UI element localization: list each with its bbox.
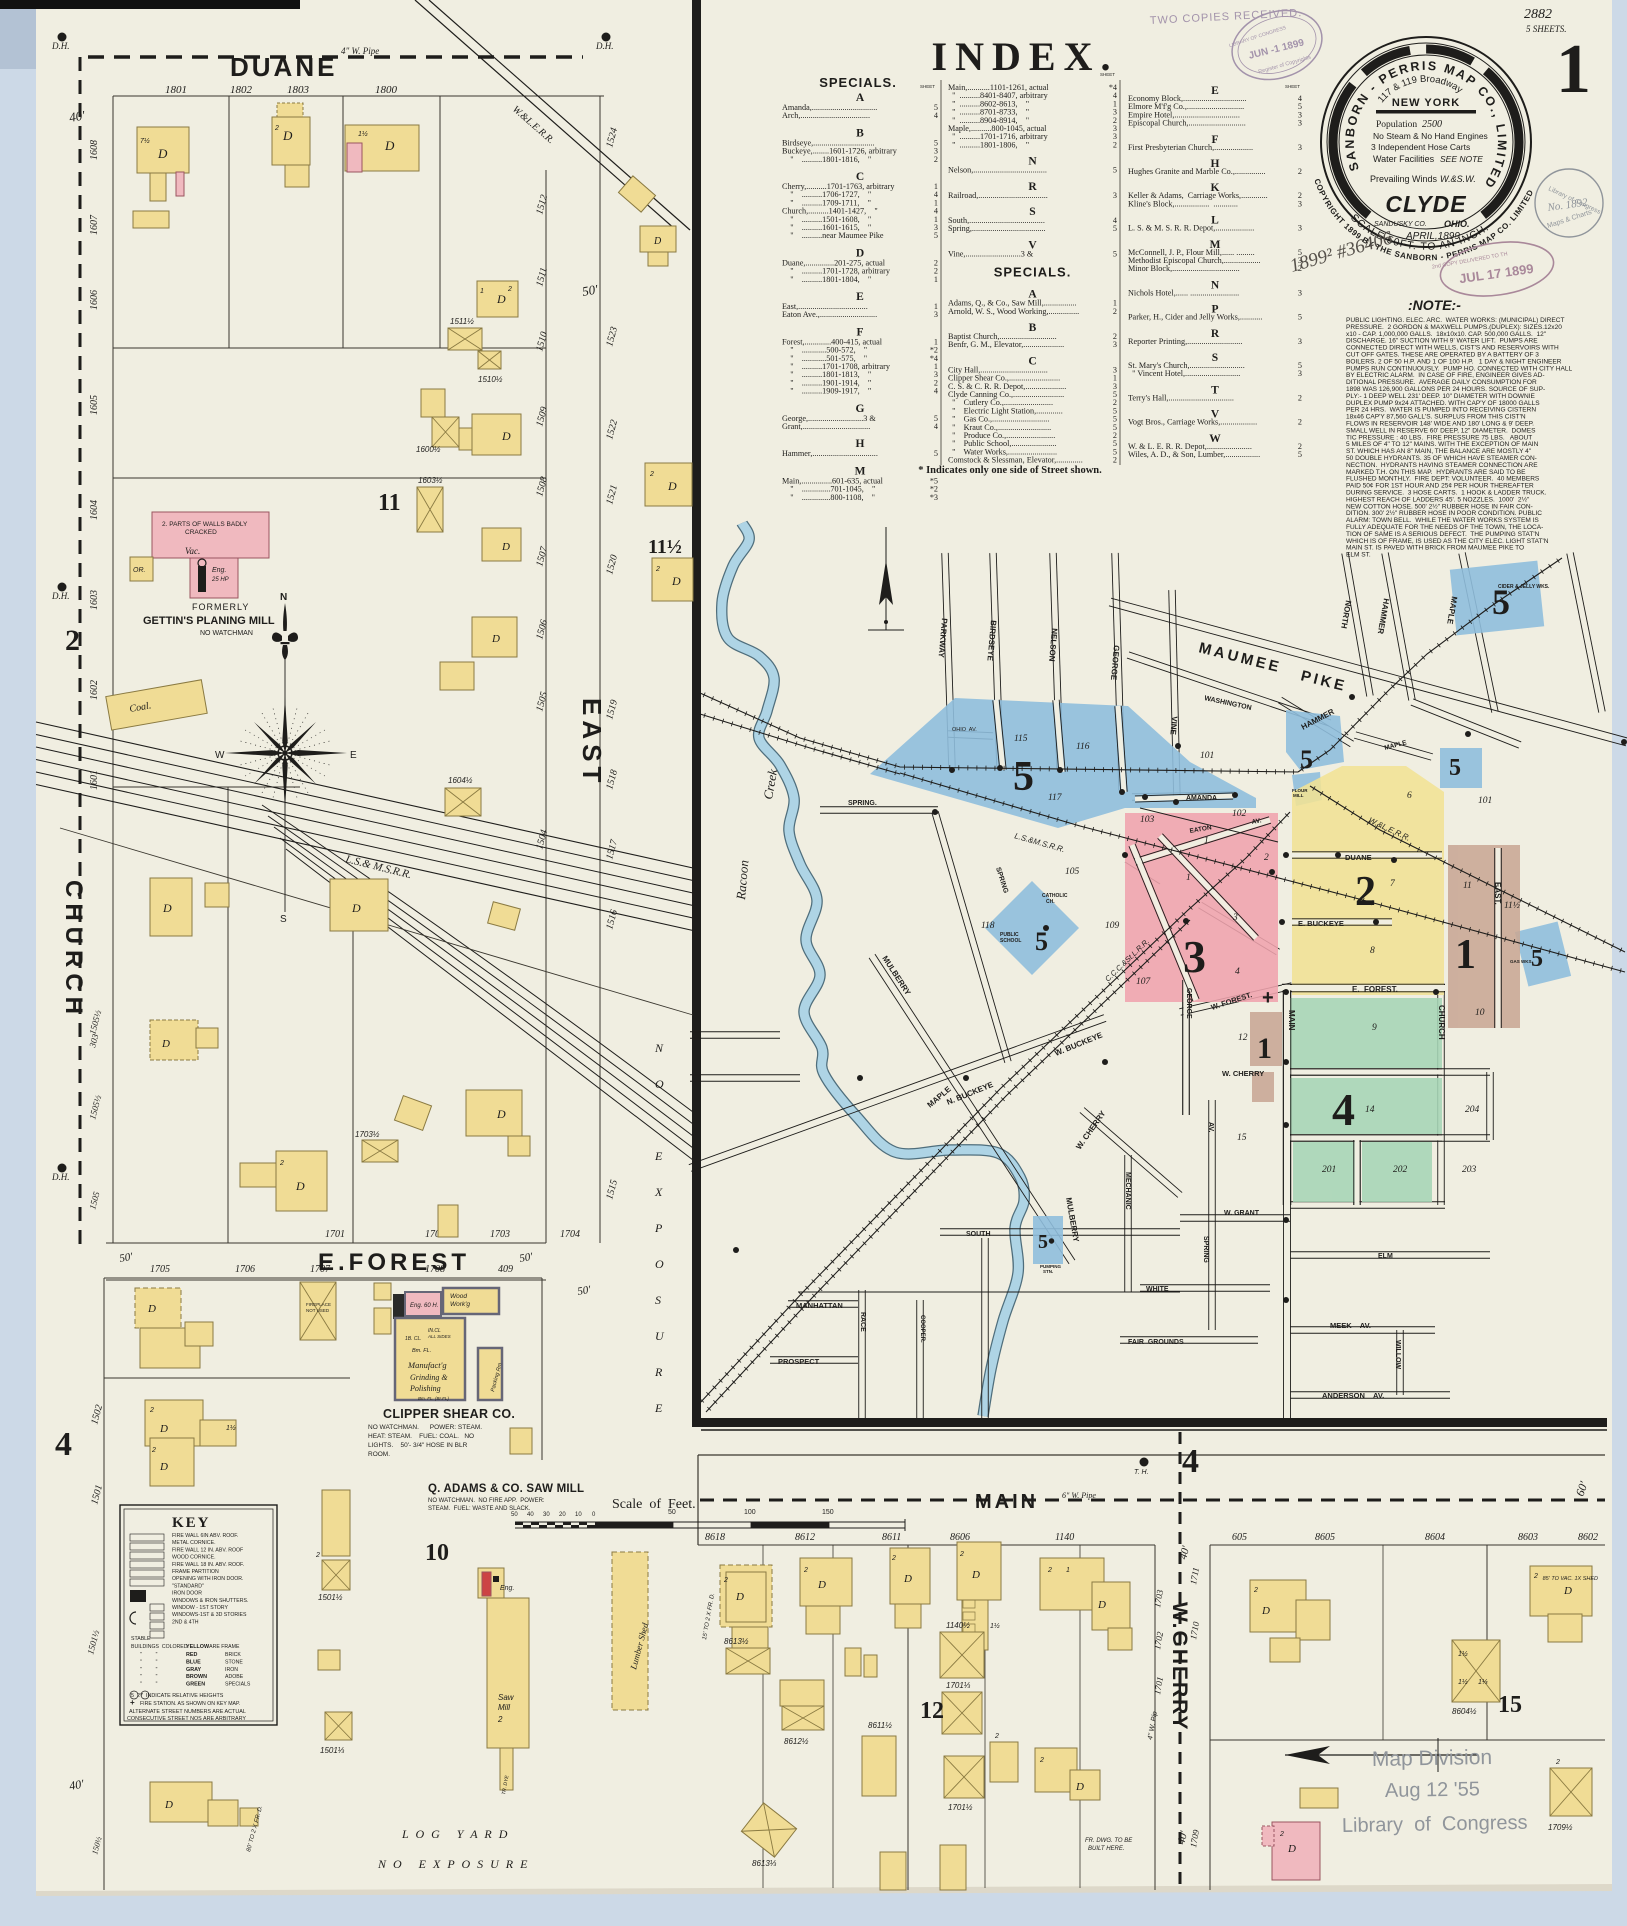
svg-text::NOTE:-: :NOTE:- [1408, 297, 1461, 313]
svg-text:8611: 8611 [882, 1532, 901, 1543]
svg-text:" ..........1801-1806, ": " ..........1801-1806, " [948, 140, 1029, 149]
svg-text:MAIN: MAIN [975, 1491, 1038, 1513]
svg-text:1803: 1803 [287, 84, 310, 96]
svg-text:11: 11 [378, 490, 401, 516]
svg-text:D: D [501, 541, 510, 553]
svg-text:1607: 1607 [89, 214, 100, 235]
svg-text:2: 2 [1298, 393, 1302, 402]
svg-text:101: 101 [1478, 796, 1492, 806]
svg-text:2: 2 [1298, 418, 1302, 427]
svg-text:1501½: 1501½ [318, 1593, 343, 1602]
svg-text:1602: 1602 [89, 680, 100, 700]
svg-text:118: 118 [981, 921, 995, 931]
svg-text:SEE NOTE: SEE NOTE [1440, 154, 1483, 164]
svg-text:Population: Population [1376, 120, 1420, 130]
svg-text:COOPER.: COOPER. [919, 1315, 925, 1343]
svg-text:Arnold, W. S., Wood Working,..: Arnold, W. S., Wood Working,............… [948, 307, 1079, 316]
svg-text:Hughes Granite and Marble Co.,: Hughes Granite and Marble Co.,..........… [1128, 167, 1266, 176]
svg-text:2: 2 [934, 155, 938, 164]
svg-text:NEW YORK: NEW YORK [1392, 97, 1460, 109]
svg-text:8602: 8602 [1578, 1532, 1598, 1543]
svg-text:Spring,.......................: Spring,.................................… [948, 224, 1046, 233]
svg-text:D.H.: D.H. [51, 591, 70, 601]
svg-text:D: D [1097, 1599, 1106, 1611]
svg-text:First Presbyterian Church,....: First Presbyterian Church,..............… [1128, 143, 1253, 152]
svg-text:EAST.: EAST. [1493, 882, 1502, 905]
svg-text:BROWN: BROWN [186, 1674, 207, 1680]
svg-text:3: 3 [1298, 143, 1302, 152]
svg-text:202: 202 [1393, 1165, 1408, 1175]
svg-text:SCHOOL: SCHOOL [1000, 938, 1021, 944]
svg-text:2: 2 [655, 566, 660, 573]
svg-text:STONE: STONE [225, 1659, 243, 1665]
svg-text:W.GHERRY: W.GHERRY [1168, 1602, 1191, 1732]
svg-text:204: 204 [1465, 1105, 1480, 1115]
svg-text:SPECIALS.: SPECIALS. [994, 265, 1072, 280]
svg-text:150: 150 [822, 1509, 834, 1516]
svg-text:Kline's Block,................: Kline's Block,................. ........… [1128, 199, 1238, 208]
svg-text:4: 4 [1235, 967, 1240, 977]
svg-text:3: 3 [1113, 340, 1117, 349]
svg-text:HEAT: STEAM. FUEL: COAL.: HEAT: STEAM. FUEL: COAL. NO [368, 1433, 474, 1440]
svg-text:ROOM.: ROOM. [368, 1451, 390, 1458]
svg-text:3: 3 [1183, 931, 1206, 982]
svg-text:SHEET: SHEET [1100, 72, 1115, 77]
svg-text:Minor Block,..................: Minor Block,............................… [1128, 264, 1240, 273]
svg-text:2: 2 [723, 1577, 728, 1584]
svg-text:+: + [1262, 987, 1274, 1009]
svg-text:6: 6 [1407, 791, 1412, 801]
svg-text:1: 1 [1556, 31, 1591, 108]
svg-text:40': 40' [68, 107, 86, 125]
svg-text:5: 5 [934, 231, 938, 240]
svg-text:Arch,.........................: Arch,.................................. [782, 111, 870, 120]
svg-text:NEW COTTON HOSE. 500' 2½" RUBB: NEW COTTON HOSE. 500' 2½" RUBBER HOSE IN… [1346, 502, 1533, 510]
svg-text:8613½: 8613½ [724, 1637, 749, 1646]
svg-text:5 27 INDICATE RELATIVE HEIGH: 5 27 INDICATE RELATIVE HEIGHTS [131, 1693, 224, 1699]
svg-text:1510½: 1510½ [478, 375, 503, 384]
svg-text:2: 2 [279, 1160, 284, 1167]
svg-text:MECHANIC: MECHANIC [1124, 1172, 1131, 1210]
svg-text:U: U [655, 1329, 665, 1343]
svg-text:" ..............800-1108,: " ..............800-1108, " [782, 493, 875, 502]
svg-text:D: D [1261, 1605, 1270, 1617]
svg-text:GREEN: GREEN [186, 1682, 205, 1688]
svg-text:D: D [667, 479, 677, 493]
svg-text:3: 3 [1298, 288, 1302, 297]
svg-text:LIGHTS. 50'- 3/4" HOSE IN B: LIGHTS. 50'- 3/4" HOSE IN BLR [368, 1442, 468, 1449]
svg-text:WINDOW - 1ST STORY: WINDOW - 1ST STORY [172, 1605, 228, 1611]
svg-text:O: O [655, 1077, 664, 1091]
svg-text:X: X [654, 1185, 663, 1199]
svg-text:CHURCH: CHURCH [60, 880, 87, 1020]
svg-text:FIRE WALL 18 IN. ABV. ROOF.: FIRE WALL 18 IN. ABV. ROOF. [172, 1562, 244, 1568]
svg-text:2: 2 [274, 125, 279, 132]
svg-text:7½: 7½ [140, 137, 150, 145]
svg-text:ELM: ELM [1378, 1253, 1393, 1260]
svg-text:1½: 1½ [226, 1424, 236, 1432]
svg-text:1705: 1705 [150, 1264, 170, 1275]
svg-text:2: 2 [1113, 307, 1117, 316]
svg-text:Wiles, A. D., & Son, Lumber,..: Wiles, A. D., & Son, Lumber,............… [1128, 450, 1260, 459]
svg-text:5: 5 [1298, 313, 1302, 322]
svg-text:2: 2 [507, 286, 512, 293]
svg-text:D: D [496, 1107, 506, 1121]
svg-text:W. CHERRY: W. CHERRY [1222, 1069, 1264, 1078]
svg-text:Prevailing Winds: Prevailing Winds [1370, 174, 1438, 184]
svg-text:5: 5 [1449, 755, 1461, 781]
svg-text:D: D [903, 1573, 912, 1585]
svg-text:2: 2 [1253, 1587, 1258, 1594]
svg-text:D: D [147, 1303, 156, 1315]
svg-text:1: 1 [480, 288, 484, 295]
svg-text:GEORGE: GEORGE [1185, 988, 1192, 1019]
svg-text:3: 3 [1298, 369, 1302, 378]
svg-text:8612: 8612 [795, 1532, 815, 1543]
svg-text:116: 116 [1076, 742, 1090, 752]
svg-text:1701: 1701 [325, 1229, 345, 1240]
svg-text:WINDOWS-1ST & 3D STORIES: WINDOWS-1ST & 3D STORIES [172, 1612, 247, 1618]
svg-text:10: 10 [575, 1512, 582, 1518]
svg-text:Reporter Printing,............: Reporter Printing,......................… [1128, 337, 1242, 346]
svg-text:PROSPECT: PROSPECT [778, 1357, 820, 1366]
svg-text:" ..........near Maumee Pik: " ..........near Maumee Pike [782, 231, 884, 240]
svg-text:1701½: 1701½ [948, 1803, 973, 1812]
svg-text:107: 107 [1136, 977, 1152, 987]
svg-text:1½: 1½ [1458, 1650, 1468, 1658]
svg-text:50: 50 [511, 1512, 518, 1518]
svg-text:8612½: 8612½ [784, 1737, 809, 1746]
svg-text:" ": " " [140, 1659, 158, 1665]
svg-text:Polishing: Polishing [409, 1384, 441, 1393]
svg-text:CLIPPER SHEAR CO.: CLIPPER SHEAR CO. [383, 1407, 515, 1421]
svg-text:D.H.: D.H. [51, 1172, 70, 1182]
svg-text:OHIO.: OHIO. [1444, 219, 1470, 229]
svg-text:DUANE: DUANE [230, 52, 337, 82]
svg-text:3: 3 [934, 310, 938, 319]
svg-text:6" W. Pipe: 6" W. Pipe [1062, 1491, 1096, 1500]
svg-text:W: W [215, 750, 225, 761]
svg-text:Aug 12 '55: Aug 12 '55 [1385, 1778, 1480, 1802]
svg-text:CHURCH: CHURCH [1437, 1005, 1446, 1040]
svg-text:100: 100 [744, 1509, 756, 1516]
svg-text:YELLOW: YELLOW [186, 1644, 210, 1650]
svg-text:*3: *3 [930, 493, 938, 502]
svg-text:Saw: Saw [498, 1693, 515, 1702]
svg-text:D: D [1075, 1781, 1084, 1793]
svg-text:MANHATTAN: MANHATTAN [796, 1301, 843, 1310]
svg-text:1709½: 1709½ [1548, 1823, 1573, 1832]
svg-text:D: D [817, 1579, 826, 1591]
svg-text:50': 50' [118, 1251, 134, 1265]
svg-text:Eng.: Eng. [212, 567, 226, 574]
svg-text:Mill: Mill [498, 1703, 510, 1712]
svg-text:2: 2 [1298, 167, 1302, 176]
svg-text:1802: 1802 [230, 84, 253, 96]
svg-text:D: D [671, 574, 681, 588]
svg-text:8606: 8606 [950, 1532, 970, 1543]
svg-text:105: 105 [1065, 867, 1080, 877]
svg-text:D: D [159, 1461, 168, 1473]
svg-text:KEY: KEY [172, 1515, 211, 1531]
svg-text:2: 2 [151, 1447, 156, 1454]
svg-text:1801: 1801 [165, 84, 187, 96]
svg-text:2: 2 [959, 1551, 964, 1558]
svg-text:" Vincent Hotel,..............: " Vincent Hotel,........................… [1128, 369, 1240, 378]
svg-text:2: 2 [1113, 140, 1117, 149]
svg-text:DUANE: DUANE [1345, 853, 1372, 862]
svg-text:D: D [295, 1179, 305, 1193]
svg-text:2: 2 [315, 1552, 320, 1559]
svg-text:NOT USED: NOT USED [306, 1308, 330, 1313]
svg-text:GETTIN'S PLANING MILL: GETTIN'S PLANING MILL [143, 615, 275, 627]
svg-text:RACE: RACE [859, 1312, 866, 1332]
svg-text:2: 2 [1355, 869, 1376, 915]
svg-text:1800: 1800 [375, 84, 398, 96]
svg-text:1B. CL.: 1B. CL. [405, 1336, 422, 1342]
svg-text:12: 12 [1238, 1033, 1248, 1043]
svg-text:1605: 1605 [89, 395, 100, 415]
svg-text:SHEET: SHEET [1285, 84, 1300, 89]
svg-text:IRON: IRON [225, 1667, 238, 1673]
svg-text:1603½: 1603½ [418, 476, 443, 485]
svg-text:1604½: 1604½ [448, 776, 473, 785]
svg-text:R: R [654, 1365, 663, 1379]
svg-text:No Steam & No Hand Engines: No Steam & No Hand Engines [1373, 131, 1488, 141]
svg-text:1½: 1½ [990, 1622, 1000, 1630]
svg-text:2: 2 [149, 1407, 154, 1414]
svg-text:1: 1 [1455, 932, 1476, 978]
svg-text:OR.: OR. [133, 567, 146, 574]
svg-text:SHEET: SHEET [920, 84, 935, 89]
svg-text:5: 5 [1013, 754, 1034, 800]
svg-text:FIRE WALL 6IN ABV. ROOF.: FIRE WALL 6IN ABV. ROOF. [172, 1533, 238, 1539]
svg-text:FIREPLACE: FIREPLACE [306, 1302, 331, 1307]
svg-text:Benfr, G. M., Elevator,.......: Benfr, G. M., Elevator,.................… [948, 340, 1064, 349]
svg-text:8603: 8603 [1518, 1532, 1538, 1543]
svg-text:4: 4 [934, 111, 938, 120]
svg-text:5: 5 [1300, 745, 1313, 774]
svg-text:1603: 1603 [89, 590, 100, 610]
svg-text:D: D [159, 1423, 168, 1435]
svg-text:L O G Y A R D: L O G Y A R D [401, 1827, 509, 1841]
svg-text:Grinding &: Grinding & [410, 1373, 448, 1382]
svg-text:Vac.: Vac. [185, 546, 200, 556]
svg-text:" ": " " [140, 1667, 158, 1673]
svg-text:BRICK: BRICK [225, 1652, 241, 1658]
svg-text:" ": " " [140, 1674, 158, 1680]
svg-text:1: 1 [1204, 836, 1209, 846]
svg-text:FORMERLY: FORMERLY [192, 602, 249, 612]
svg-text:ADOBE: ADOBE [225, 1674, 244, 1680]
svg-text:2: 2 [649, 471, 654, 478]
svg-text:11½: 11½ [648, 536, 682, 558]
svg-text:1140½: 1140½ [946, 1621, 970, 1630]
svg-text:NO WATCHMAN. POWER: STEAM: NO WATCHMAN. POWER: STEAM. [368, 1424, 482, 1431]
svg-text:Wood: Wood [450, 1293, 467, 1300]
svg-text:Eaton Ave.,...................: Eaton Ave.,............................ [782, 310, 877, 319]
svg-text:Scale of Feet.: Scale of Feet. [612, 1497, 696, 1512]
svg-text:3: 3 [1298, 337, 1302, 346]
svg-text:1140: 1140 [1055, 1532, 1074, 1543]
svg-text:D: D [491, 633, 500, 645]
svg-text:D: D [653, 236, 662, 247]
svg-text:CIDER & JELLY WKS.: CIDER & JELLY WKS. [1498, 584, 1550, 590]
svg-text:W.&S.W.: W.&S.W. [1440, 174, 1476, 184]
svg-text:ALTERNATE STREET NUMBERS ARE A: ALTERNATE STREET NUMBERS ARE ACTUAL [129, 1709, 246, 1715]
svg-text:1⅓: 1⅓ [1478, 1679, 1488, 1686]
svg-text:VINE: VINE [1168, 716, 1179, 736]
svg-text:5: 5 [1035, 927, 1048, 956]
svg-text:MAIN: MAIN [1287, 1010, 1296, 1031]
svg-text:FR. DWG. TO BE: FR. DWG. TO BE [1085, 1838, 1133, 1844]
svg-text:5: 5 [1113, 224, 1117, 233]
svg-text:WINDOWS & IRON SHUTTERS.: WINDOWS & IRON SHUTTERS. [172, 1598, 248, 1604]
svg-text:12: 12 [920, 1698, 944, 1724]
svg-text:2: 2 [1047, 1567, 1052, 1574]
svg-text:1½: 1½ [1458, 1678, 1468, 1686]
svg-text:SOUTH: SOUTH [966, 1231, 991, 1238]
svg-text:8611½: 8611½ [868, 1721, 892, 1730]
svg-text:D: D [162, 901, 172, 915]
svg-text:BUILT HERE.: BUILT HERE. [1088, 1846, 1125, 1852]
svg-text:3: 3 [1298, 199, 1302, 208]
svg-text:P: P [654, 1221, 663, 1235]
svg-text:CONSECUTIVE STREET NOS ARE ARB: CONSECUTIVE STREET NOS ARE ARBITRARY [127, 1716, 246, 1722]
svg-text:E: E [654, 1401, 663, 1415]
svg-text:2: 2 [891, 1555, 896, 1562]
svg-text:1707: 1707 [310, 1264, 331, 1275]
svg-text:FAIR GROUNDS: FAIR GROUNDS [1128, 1339, 1184, 1346]
svg-text:2: 2 [497, 1715, 503, 1724]
svg-text:N O E X P O S U R E: N O E X P O S U R E [377, 1857, 529, 1871]
svg-text:1706: 1706 [235, 1264, 255, 1275]
svg-text:1: 1 [934, 275, 938, 284]
svg-text:FRAME PARTITION: FRAME PARTITION [172, 1569, 219, 1575]
svg-text:50': 50' [576, 1284, 592, 1298]
svg-text:8613⅓: 8613⅓ [752, 1859, 777, 1868]
svg-text:WILLOW: WILLOW [1394, 1340, 1401, 1370]
svg-text:30: 30 [543, 1512, 550, 1518]
svg-text:1: 1 [1257, 1032, 1272, 1065]
svg-text:1: 1 [1066, 1567, 1070, 1574]
svg-text:Grant,........................: Grant,................................. [782, 422, 870, 431]
svg-text:2882: 2882 [1524, 7, 1552, 22]
svg-text:2: 2 [1279, 1831, 1284, 1838]
svg-text:E. BUCKEYE: E. BUCKEYE [1298, 919, 1344, 928]
svg-text:1600½: 1600½ [416, 445, 441, 454]
svg-text:D: D [164, 1799, 173, 1811]
svg-text:D.H.: D.H. [595, 41, 614, 51]
svg-text:D: D [157, 146, 168, 161]
svg-text:5: 5 [934, 449, 938, 458]
svg-text:Water Facilities: Water Facilities [1373, 154, 1435, 164]
svg-text:N: N [280, 592, 287, 603]
svg-text:8618: 8618 [705, 1532, 725, 1543]
svg-text:4: 4 [1332, 1084, 1355, 1135]
svg-text:2: 2 [1113, 456, 1117, 465]
svg-text:SPECIALS: SPECIALS [225, 1682, 251, 1688]
svg-text:CH.: CH. [1046, 899, 1055, 905]
svg-text:1: 1 [1186, 873, 1191, 883]
svg-text:85' TO VAC. 1X SHED: 85' TO VAC. 1X SHED [1543, 1576, 1598, 1582]
svg-text:203: 203 [1462, 1165, 1477, 1175]
svg-text:E: E [350, 750, 357, 761]
svg-text:Railroad,.....................: Railroad,...............................… [948, 191, 1048, 200]
svg-text:4: 4 [934, 422, 938, 431]
svg-text:AMANDA: AMANDA [1186, 795, 1217, 802]
svg-text:Comstock & Slessman, Elevator,: Comstock & Slessman, Elevator,..........… [948, 456, 1083, 465]
svg-text:NO WATCHMAN. NO FIRE APP. PO: NO WATCHMAN. NO FIRE APP. POWER: [428, 1498, 545, 1504]
svg-text:3: 3 [1113, 191, 1117, 200]
svg-text:40': 40' [68, 1777, 85, 1793]
svg-text:Parker, H., Cider and Jelly Wo: Parker, H., Cider and Jelly Works,......… [1128, 313, 1262, 322]
svg-text:Library of Congress: Library of Congress [1342, 1812, 1528, 1837]
svg-text:D: D [1287, 1843, 1296, 1855]
svg-text:D.H.: D.H. [51, 41, 70, 51]
svg-text:4: 4 [934, 387, 938, 396]
svg-text:HIGHEST REACH OF LADDERS 45'.: HIGHEST REACH OF LADDERS 45'. 5 NOZZLES.… [1346, 495, 1530, 503]
svg-text:117: 117 [1048, 793, 1063, 803]
svg-text:FIRE STATION. AS SHOWN ON KEY: FIRE STATION. AS SHOWN ON KEY MAP. [140, 1701, 240, 1707]
svg-text:1708: 1708 [425, 1264, 445, 1275]
svg-text:S: S [655, 1293, 661, 1307]
svg-text:11: 11 [1463, 881, 1472, 891]
svg-text:8605: 8605 [1315, 1532, 1335, 1543]
svg-text:EAST: EAST [577, 698, 607, 787]
svg-text:20: 20 [559, 1512, 566, 1518]
svg-text:Terry's Hall,.................: Terry's Hall,...........................… [1128, 393, 1234, 402]
svg-text:Q. ADAMS & CO. SAW MILL: Q. ADAMS & CO. SAW MILL [428, 1483, 584, 1495]
svg-text:GAS WKS.: GAS WKS. [1510, 959, 1533, 964]
svg-text:METAL CORNICE.: METAL CORNICE. [172, 1540, 216, 1546]
svg-text:50': 50' [518, 1251, 534, 1265]
svg-text:BLUE: BLUE [186, 1659, 201, 1665]
svg-text:RED: RED [186, 1652, 197, 1658]
svg-text:1701⅓: 1701⅓ [946, 1681, 971, 1690]
svg-text:D: D [282, 128, 293, 143]
svg-text:2: 2 [65, 624, 80, 657]
svg-text:CLYDE: CLYDE [1385, 191, 1466, 217]
svg-text:SANDUSKY CO.: SANDUSKY CO. [1374, 221, 1427, 228]
svg-text:N: N [654, 1041, 664, 1055]
svg-text:1½: 1½ [358, 130, 368, 138]
svg-text:2: 2 [1039, 1757, 1044, 1764]
svg-text:ALL SIDES: ALL SIDES [427, 1334, 451, 1339]
svg-text:D: D [351, 901, 361, 915]
svg-text:9: 9 [1372, 1023, 1377, 1033]
svg-text:" ": " " [140, 1652, 158, 1658]
svg-text:5: 5 [1113, 166, 1117, 175]
svg-text:1703½: 1703½ [355, 1130, 380, 1139]
svg-text:Bm. FL. (Br.FL): Bm. FL. (Br.FL) [418, 1396, 449, 1401]
svg-text:E. FOREST.: E. FOREST. [1352, 985, 1398, 994]
svg-text:D: D [735, 1591, 744, 1603]
svg-text:NO WATCHMAN: NO WATCHMAN [200, 630, 253, 637]
svg-text:OPENING WITH IRON DOOR.: OPENING WITH IRON DOOR. [172, 1576, 243, 1582]
svg-text:Map Division: Map Division [1372, 1746, 1493, 1771]
svg-text:50: 50 [668, 1509, 676, 1516]
svg-text:GRAY: GRAY [186, 1667, 201, 1673]
svg-text:D: D [971, 1569, 980, 1581]
svg-text:W. GRANT: W. GRANT [1224, 1210, 1260, 1217]
svg-text:2: 2 [994, 1733, 999, 1740]
svg-text:1703: 1703 [490, 1229, 510, 1240]
svg-text:E: E [654, 1149, 663, 1163]
svg-text:2: 2 [1264, 853, 1269, 863]
svg-text:3: 3 [1298, 119, 1302, 128]
svg-text:D: D [1563, 1585, 1572, 1597]
